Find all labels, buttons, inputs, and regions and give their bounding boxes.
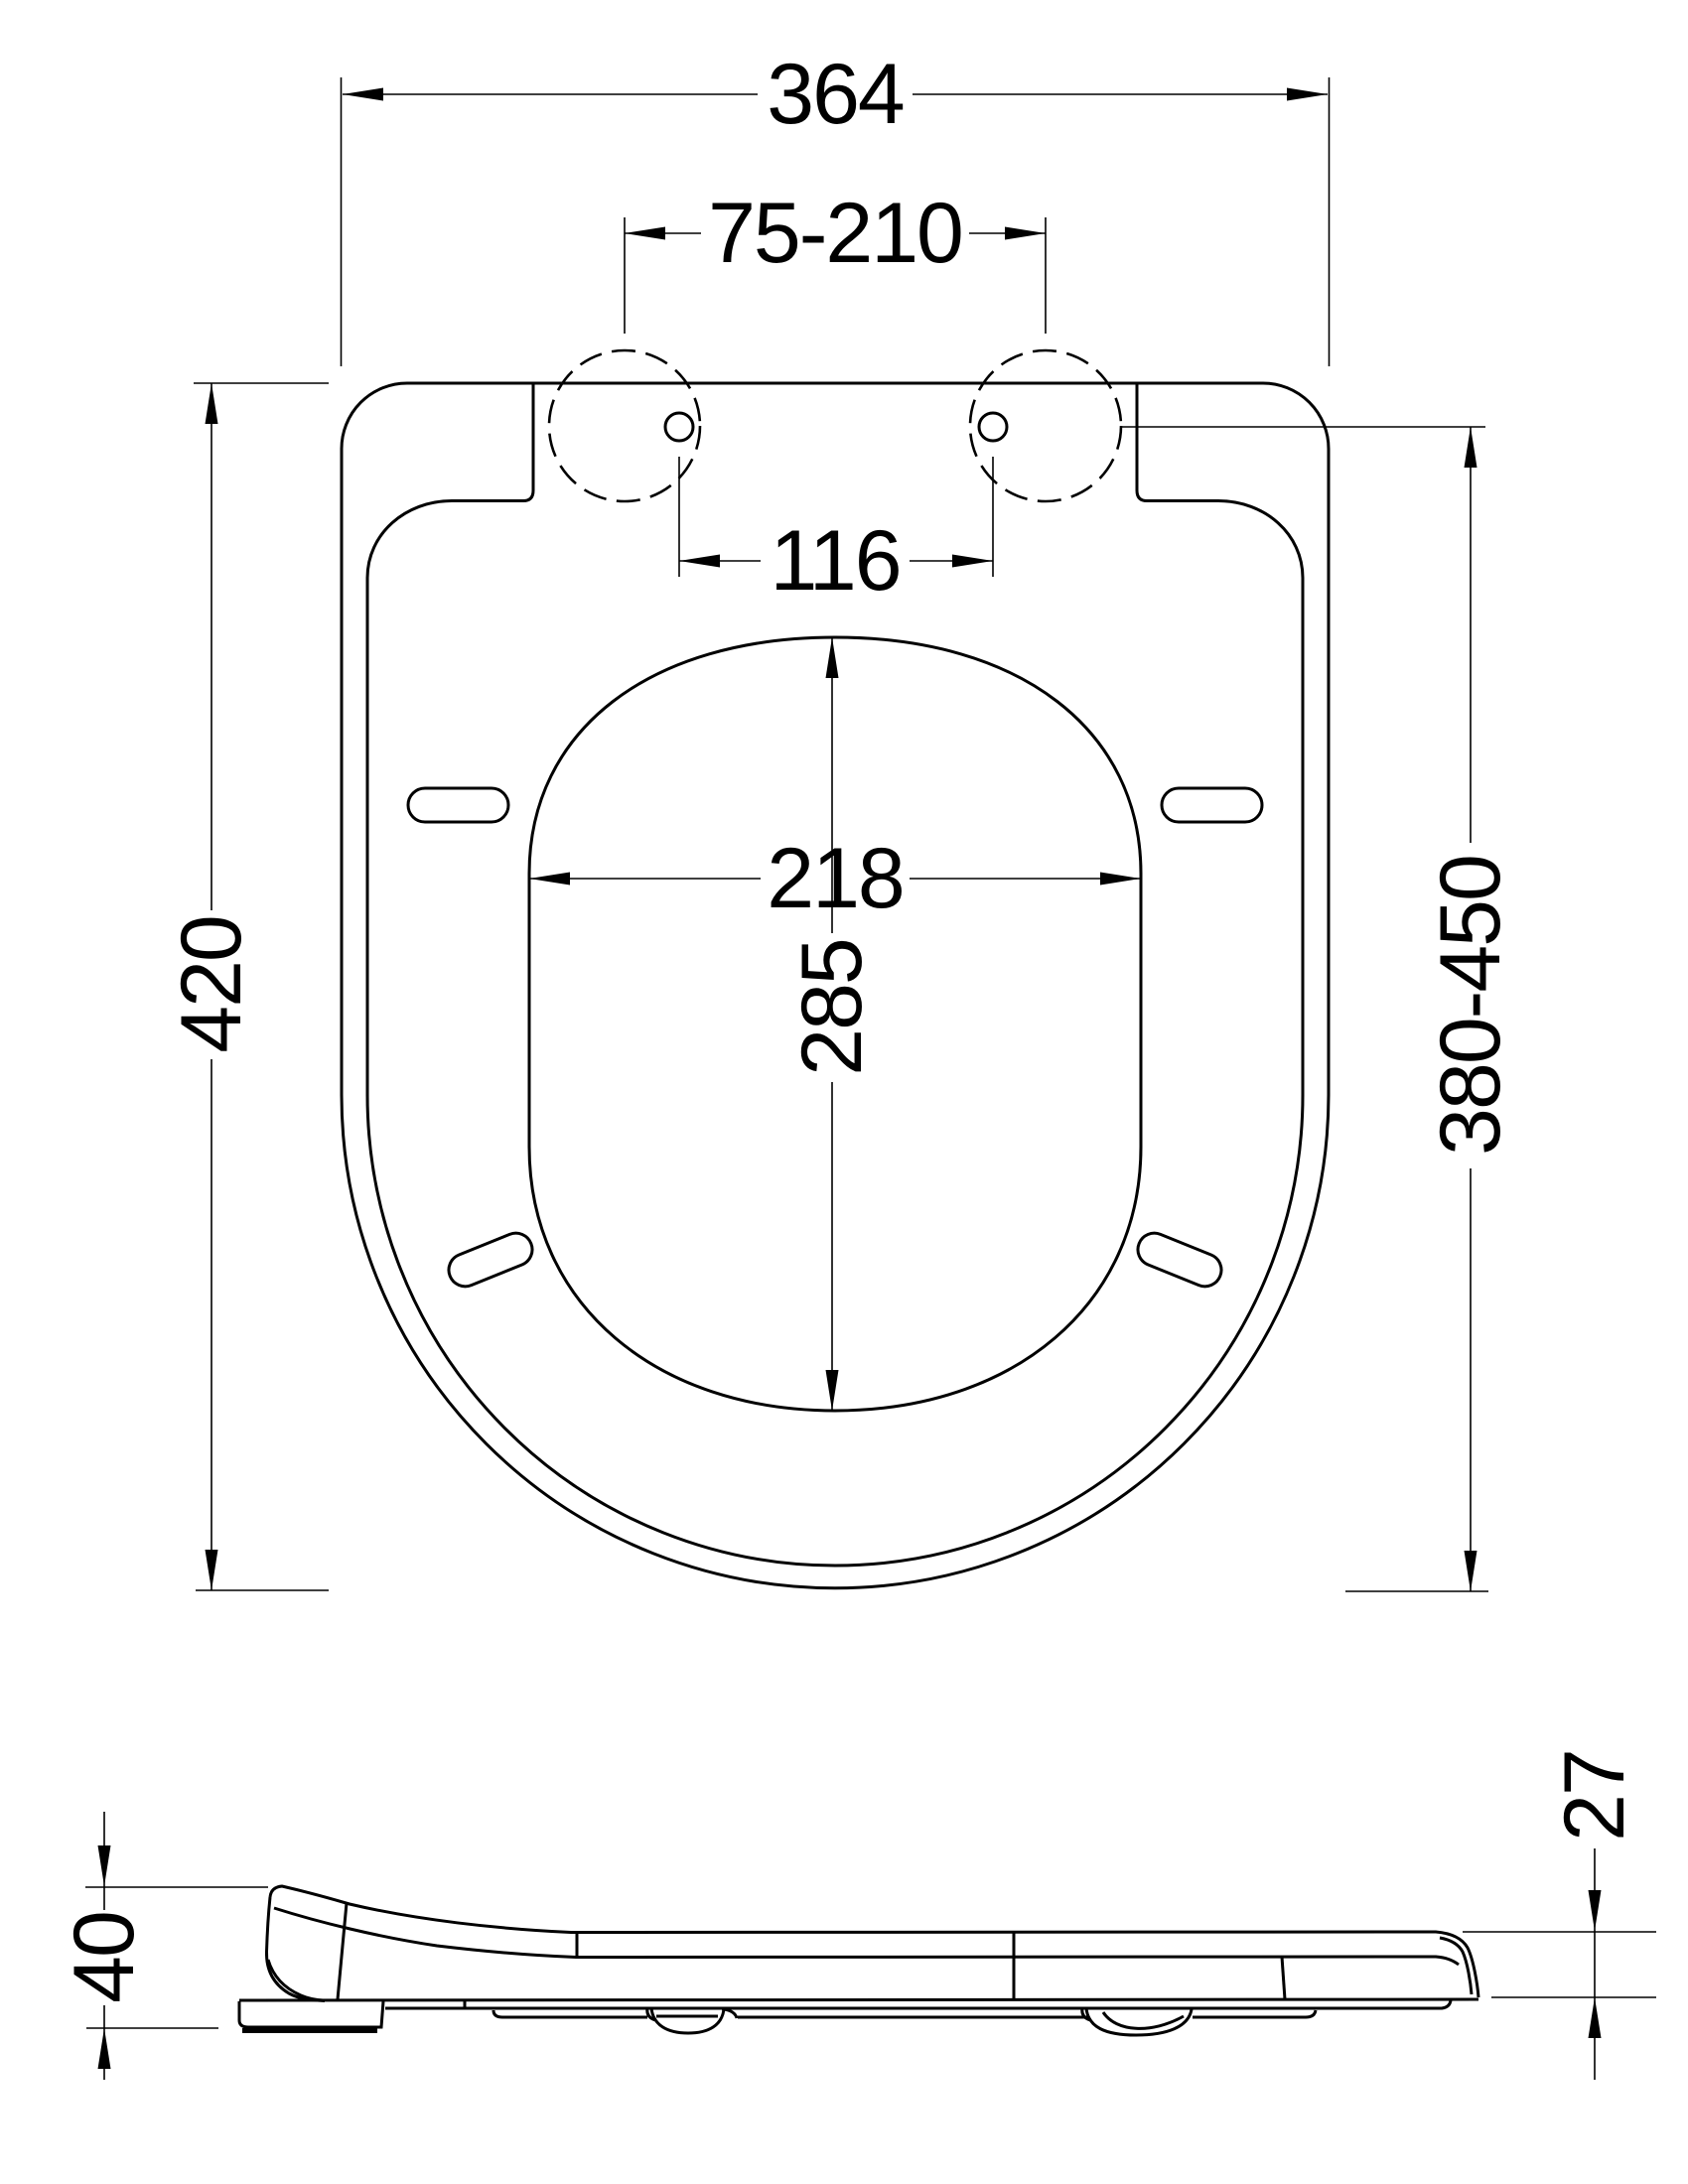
svg-text:116: 116 <box>770 513 900 609</box>
svg-text:40: 40 <box>57 1912 152 2003</box>
svg-text:75-210: 75-210 <box>708 186 962 281</box>
svg-text:218: 218 <box>767 831 904 926</box>
svg-text:364: 364 <box>767 47 904 142</box>
svg-text:27: 27 <box>1547 1750 1642 1842</box>
svg-text:380-450: 380-450 <box>1423 856 1518 1156</box>
svg-text:420: 420 <box>164 916 259 1053</box>
svg-text:285: 285 <box>784 939 880 1076</box>
